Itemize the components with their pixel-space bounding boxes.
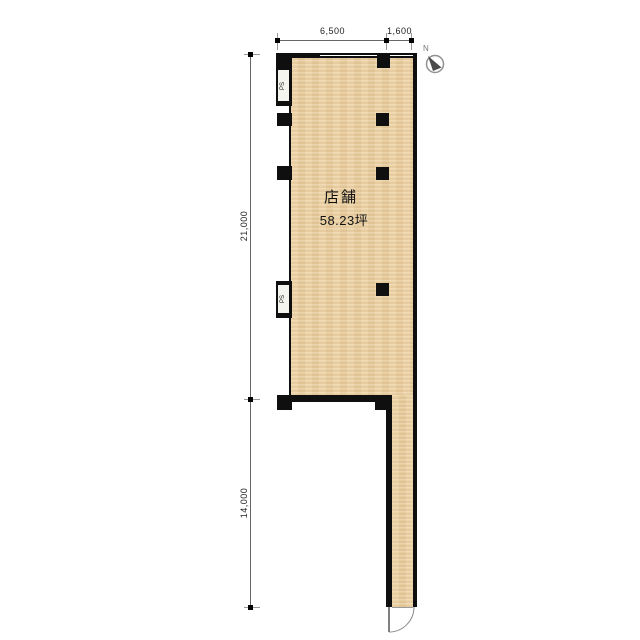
dimension-label-top-main: 6,500 [278,25,387,36]
left-dim-tick-bottom [248,605,253,610]
door-swing-arc [389,607,414,632]
top-dim-tick-right [409,38,414,43]
door-swing-drawing [0,0,640,640]
floor-plan-canvas: PS PS 店舗 58.23坪 N 6,500 1,600 21,000 14,… [0,0,640,640]
dimension-label-left-lower: 14,000 [238,448,250,558]
top-dim-tick-mid [384,38,389,43]
left-dim-tick-mid [248,397,253,402]
left-dim-tick-top [248,52,253,57]
left-dimension-line [250,54,251,607]
top-dim-tick-left [275,38,280,43]
dimension-label-top-entry: 1,600 [386,25,413,36]
compass-icon [418,42,454,78]
top-dimension-line [278,40,413,41]
dimension-label-left-main: 21,000 [238,171,250,281]
